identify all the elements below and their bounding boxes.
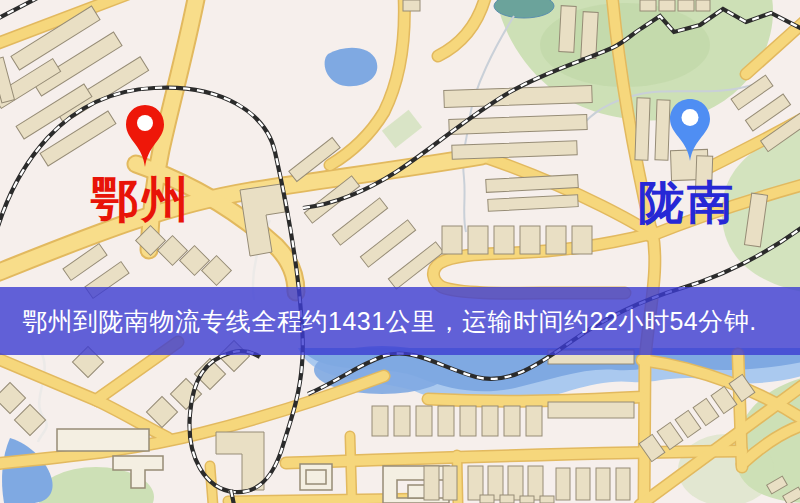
route-info-banner: 鄂州到陇南物流专线全程约1431公里，运输时间约22小时54分钟. [0, 287, 800, 355]
destination-pin-icon[interactable] [667, 97, 713, 167]
map-canvas[interactable]: 鄂州 陇南 鄂州到陇南物流专线全程约1431公里，运输时间约22小时54分钟. [0, 0, 800, 503]
destination-city-label: 陇南 [638, 179, 736, 225]
map-background [0, 0, 800, 503]
route-info-text: 鄂州到陇南物流专线全程约1431公里，运输时间约22小时54分钟. [22, 305, 757, 338]
origin-pin-icon[interactable] [123, 103, 167, 173]
origin-city-label: 鄂州 [90, 176, 192, 224]
